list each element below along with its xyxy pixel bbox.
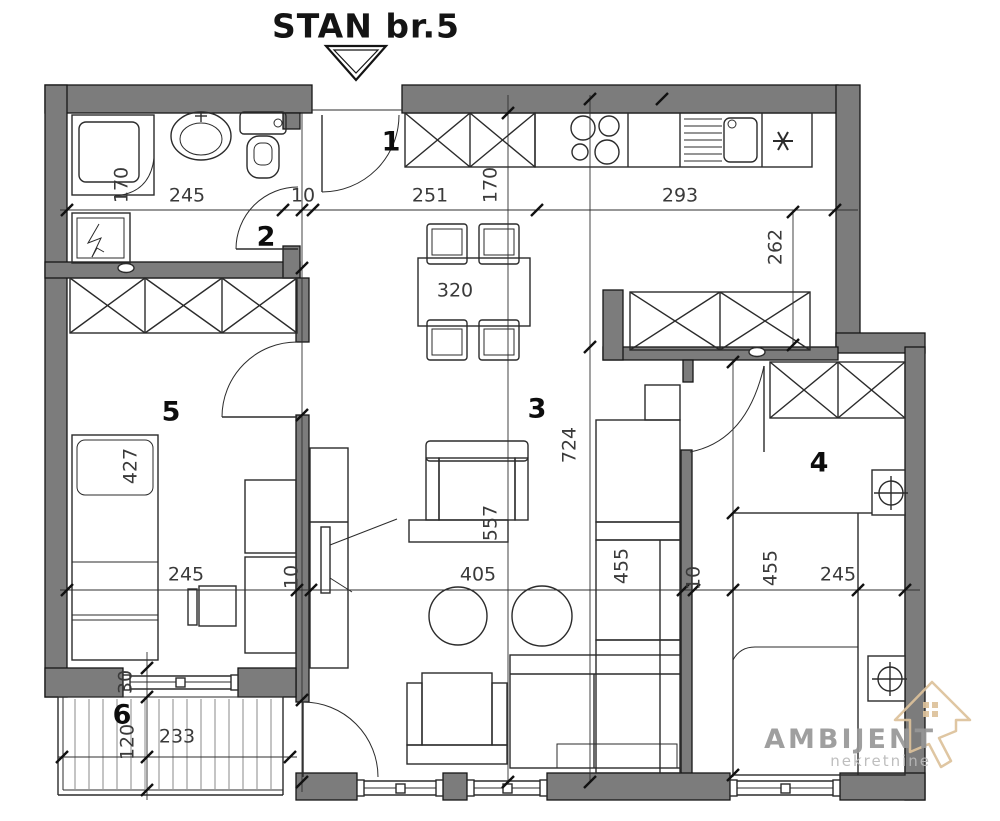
dim-room5-width: 245 [168,564,204,586]
stove-icon [571,116,619,164]
tv-cabinet [310,448,397,668]
balcony-door [303,702,378,777]
dim-hall-width: 251 [412,185,448,207]
sink-icon [171,112,231,160]
logo-tagline: nekretnine [830,752,931,770]
dim-hall-depth: 170 [480,167,502,203]
room-label-3: 3 [528,394,547,425]
hall-wardrobe [405,113,535,167]
water-heater-icon [72,213,130,263]
room5-desk [188,586,236,626]
dim-parapet: 30 [115,670,137,694]
floor-plan-drawing: STAN br.5 [0,0,1000,821]
room5-door [222,342,297,417]
shelving-column [596,385,680,773]
dim-bath-depth: 170 [111,167,133,203]
room4-wardrobe [770,362,905,418]
logo: AMBIJENT nekretnine [764,682,970,770]
round-tables [429,586,572,646]
dim-bath-door: 10 [291,185,315,207]
door-stop [118,264,134,273]
room5-window [123,675,238,690]
dim-living-width: 405 [460,564,496,586]
armchair-top [409,441,528,542]
dim-dining-table: 320 [437,280,473,302]
kitchen-sink-icon [684,118,757,162]
floor-plan: STAN br.5 [0,0,1000,821]
room5-bed [72,435,158,660]
dim-bed5-length: 427 [120,448,142,484]
dim-cabinet-run: 455 [611,548,633,584]
room-label-4: 4 [810,448,829,479]
plan-title: STAN br.5 [272,7,460,46]
dim-bath-width: 245 [169,185,205,207]
room4-door [690,366,764,452]
room5-wardrobe [70,278,297,333]
nightstand-top [872,470,908,515]
dimension-labels: 170 245 10 251 170 293 262 320 724 557 4… [111,167,857,760]
room-label-6: 6 [113,700,132,731]
dim-kitchen-depth: 262 [765,229,787,265]
door-stop [749,348,765,357]
toilet-icon [240,112,286,178]
dim-wall-b: 10 [281,565,303,589]
dim-living-depth: 724 [559,427,581,463]
room4-window [730,780,840,796]
dim-balcony-width: 233 [159,726,195,748]
nightstand-bottom [868,656,907,701]
dining-table [418,258,530,326]
entry-arrow-icon [326,46,386,80]
room-label-5: 5 [162,397,181,428]
dim-armchair: 557 [480,505,502,541]
dim-kitchen-width: 293 [662,185,698,207]
room-numbers: 1 2 3 4 5 6 [113,127,829,731]
room-label-2: 2 [257,222,276,253]
armchair-bottom [407,673,507,764]
dim-bed4-length: 455 [760,550,782,586]
logo-name: AMBIJENT [764,724,936,755]
niche-wardrobe [630,292,810,350]
room-label-1: 1 [382,127,401,158]
boiler-star-icon [773,132,793,150]
dim-wall-a: 10 [683,566,705,590]
dim-room4-width: 245 [820,564,856,586]
living-window-left [357,780,443,796]
